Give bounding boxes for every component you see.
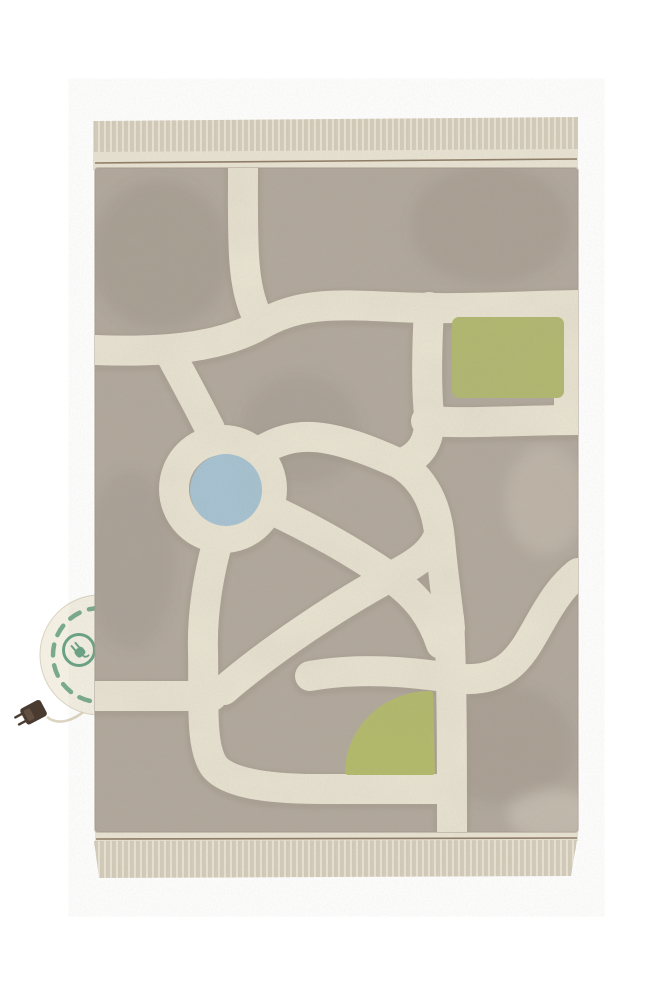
play-rug-product-photo	[0, 0, 667, 1000]
power-plug-charm	[13, 699, 48, 729]
product-photo-stage	[0, 0, 667, 1000]
texture-grain	[93, 117, 580, 878]
play-rug	[85, 117, 598, 878]
